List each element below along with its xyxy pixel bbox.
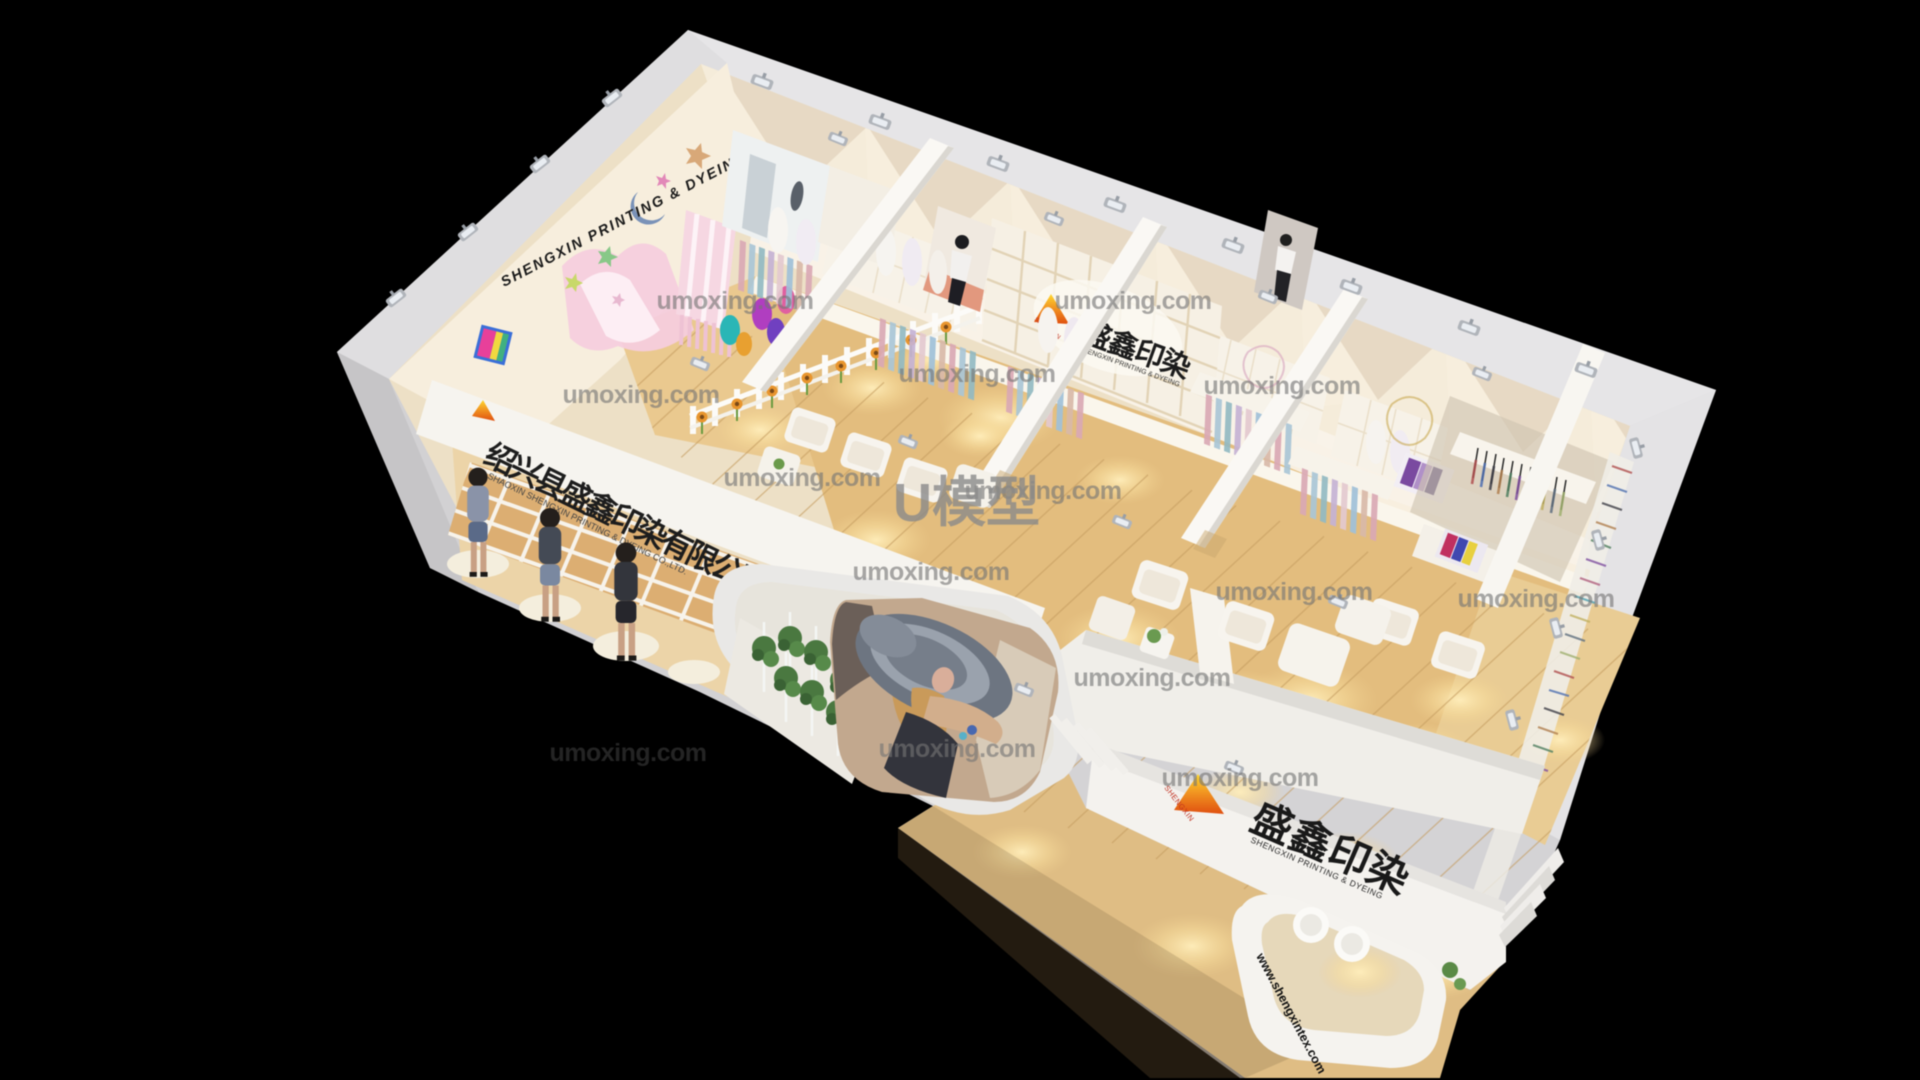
- svg-text:umoxing.com: umoxing.com: [1054, 287, 1211, 315]
- svg-text:umoxing.com: umoxing.com: [549, 739, 706, 767]
- svg-text:umoxing.com: umoxing.com: [1203, 372, 1360, 400]
- svg-text:umoxing.com: umoxing.com: [562, 381, 719, 409]
- svg-text:umoxing.com: umoxing.com: [878, 735, 1035, 763]
- svg-text:umoxing.com: umoxing.com: [852, 558, 1009, 586]
- svg-text:umoxing.com: umoxing.com: [898, 360, 1055, 388]
- svg-text:umoxing.com: umoxing.com: [1161, 764, 1318, 792]
- svg-text:umoxing.com: umoxing.com: [656, 287, 813, 315]
- svg-text:umoxing.com: umoxing.com: [1215, 578, 1372, 606]
- svg-text:umoxing.com: umoxing.com: [1073, 664, 1230, 692]
- svg-text:U模型: U模型: [893, 473, 1040, 533]
- svg-text:umoxing.com: umoxing.com: [1457, 585, 1614, 613]
- svg-text:umoxing.com: umoxing.com: [723, 464, 880, 492]
